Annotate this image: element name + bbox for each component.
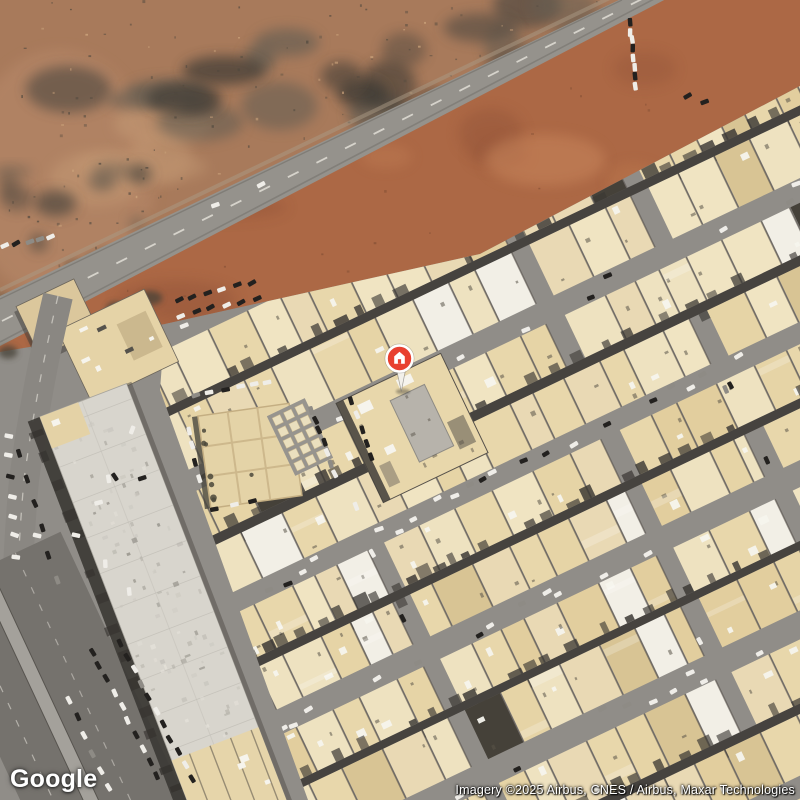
satellite-imagery[interactable] bbox=[0, 0, 800, 800]
map-viewport[interactable]: Google Imagery ©2025 Airbus, CNES / Airb… bbox=[0, 0, 800, 800]
google-logo[interactable]: Google bbox=[10, 765, 97, 794]
imagery-attribution: Imagery ©2025 Airbus, CNES / Airbus, Max… bbox=[455, 783, 795, 797]
